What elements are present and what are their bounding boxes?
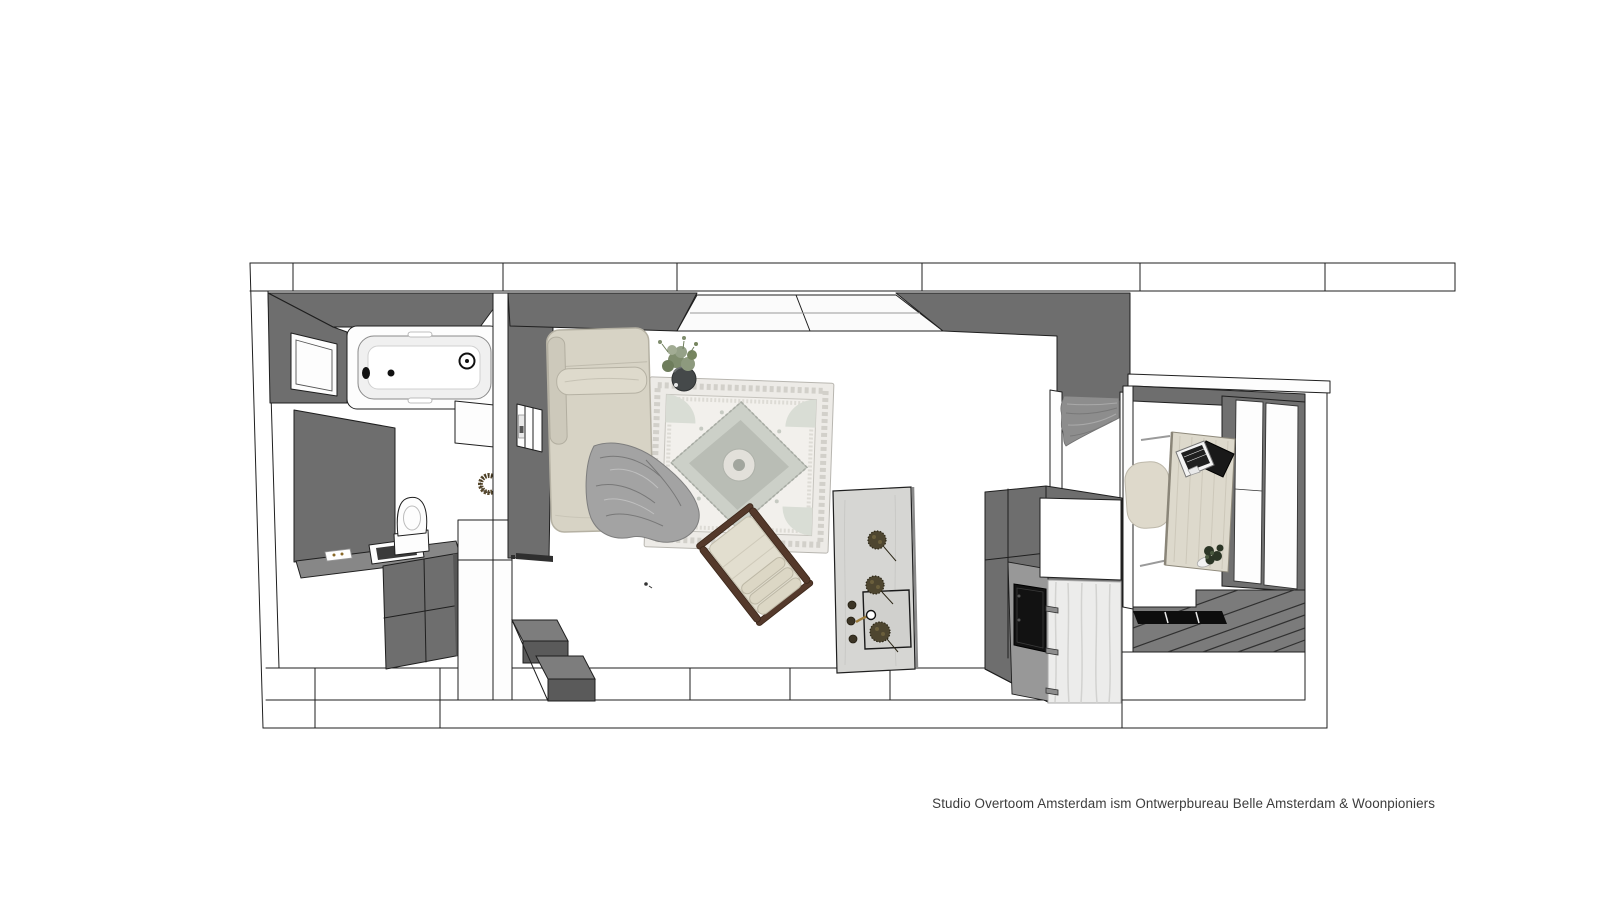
stairs [512, 620, 595, 701]
tub-drain-icon [388, 370, 395, 377]
tub-grip [408, 398, 432, 403]
wardrobe-door [1234, 400, 1263, 584]
bathroom-mid-wall-face [294, 410, 395, 562]
toilet [394, 497, 429, 555]
top-wall-band [250, 263, 1455, 291]
wardrobe-door [1264, 403, 1298, 589]
bathtub [347, 326, 500, 409]
caption: Studio Overtoom Amsterdam ism Ontwerpbur… [932, 796, 1435, 811]
bathroom-window [291, 333, 337, 396]
tub-grip [408, 332, 432, 337]
desk-room [1123, 374, 1330, 652]
kitchen-unit [985, 486, 1122, 703]
kitchen-counter [1040, 498, 1121, 580]
tub-faucet-icon [362, 367, 370, 379]
plant-foliage [658, 336, 698, 372]
stair-treads [1133, 611, 1227, 624]
floor-mark [644, 582, 652, 588]
entry-floor [1133, 586, 1305, 652]
divider-window [517, 404, 542, 452]
living-top-wall-left-face [508, 293, 697, 331]
shower-control-icon [460, 354, 475, 369]
oven [1014, 584, 1046, 652]
living-window [677, 295, 943, 331]
bathroom-vanity [296, 538, 461, 669]
living-top-wall-right-face [896, 293, 1130, 400]
bottom-wall-band [263, 652, 1327, 728]
curtain [1061, 396, 1119, 446]
kitchen-island [833, 487, 917, 673]
bathroom-wall-cabinet [455, 401, 494, 447]
floorplan-drawing [0, 0, 1600, 900]
floorplan-page: Studio Overtoom Amsterdam ism Ontwerpbur… [0, 0, 1600, 900]
wardrobe [1222, 396, 1305, 592]
marble-panel [1046, 580, 1121, 703]
